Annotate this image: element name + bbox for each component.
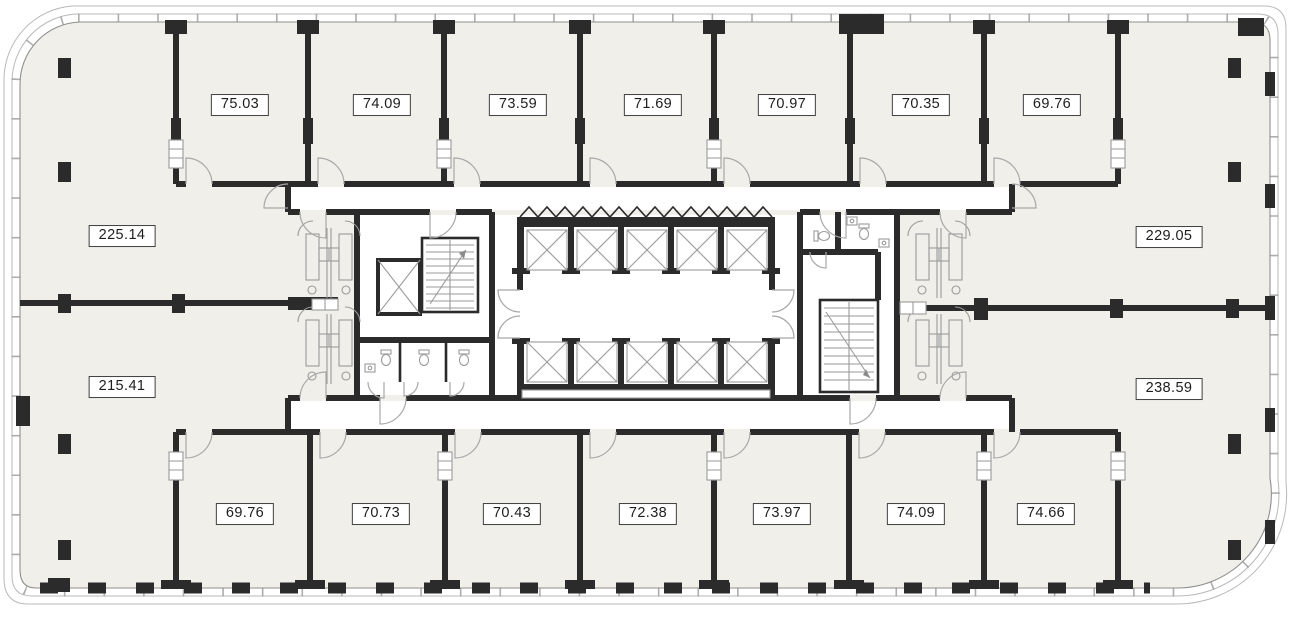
elevator-shaft-icon [727,230,767,270]
room-area-label: 70.35 [892,94,950,116]
elevator-shaft-icon [627,342,667,382]
elevator-shaft-icon [627,230,667,270]
floor-plan-canvas: 75.03 74.09 73.59 71.69 70.97 70.35 69.7… [0,0,1301,620]
toilet-icon [459,350,469,366]
room-area-label: 74.09 [887,503,945,525]
corridor-bottom [288,401,1012,429]
room-area-label: 72.38 [619,503,677,525]
duct-icon [438,452,452,480]
duct-icon [977,452,991,480]
sink-icon [879,239,889,247]
elevator-shaft-icon [577,342,617,382]
elevator-shaft-icon [527,230,567,270]
elevator-shaft-icon [677,230,717,270]
elevator-shaft-icon [527,342,567,382]
duct-icon [169,140,183,168]
elevator-shaft-icon [677,342,717,382]
sink-icon [365,364,375,372]
elevator-shaft-icon [727,342,767,382]
room-area-label: 71.69 [624,94,682,116]
room-area-label: 74.66 [1017,503,1075,525]
elevator-shaft-icon [577,230,617,270]
room-area-label: 73.59 [489,94,547,116]
room-area-label: 229.05 [1136,226,1203,248]
room-area-label: 73.97 [753,503,811,525]
sink-icon [847,217,857,225]
duct-icon [169,452,183,480]
duct-icon [707,452,721,480]
corridor-top [288,187,1012,210]
room-area-label: 70.43 [483,503,541,525]
toilet-icon [419,350,429,366]
room-area-label: 225.14 [89,225,156,247]
room-area-label: 75.03 [211,94,269,116]
toilet-icon [381,350,391,366]
room-area-label: 69.76 [1023,94,1081,116]
floor-plan-drawing [0,0,1301,620]
core-left-detail [365,238,478,382]
toilet-icon [814,231,830,241]
duct-icon [437,140,451,168]
duct-icon [1111,140,1125,168]
room-area-label: 69.76 [216,503,274,525]
duct-icon [707,140,721,168]
room-area-label: 238.59 [1136,378,1203,400]
room-area-label: 74.09 [353,94,411,116]
room-area-label: 215.41 [89,376,156,398]
toilet-icon [859,224,869,240]
room-area-label: 70.97 [758,94,816,116]
room-area-label: 70.73 [352,503,410,525]
duct-icon [1111,452,1125,480]
